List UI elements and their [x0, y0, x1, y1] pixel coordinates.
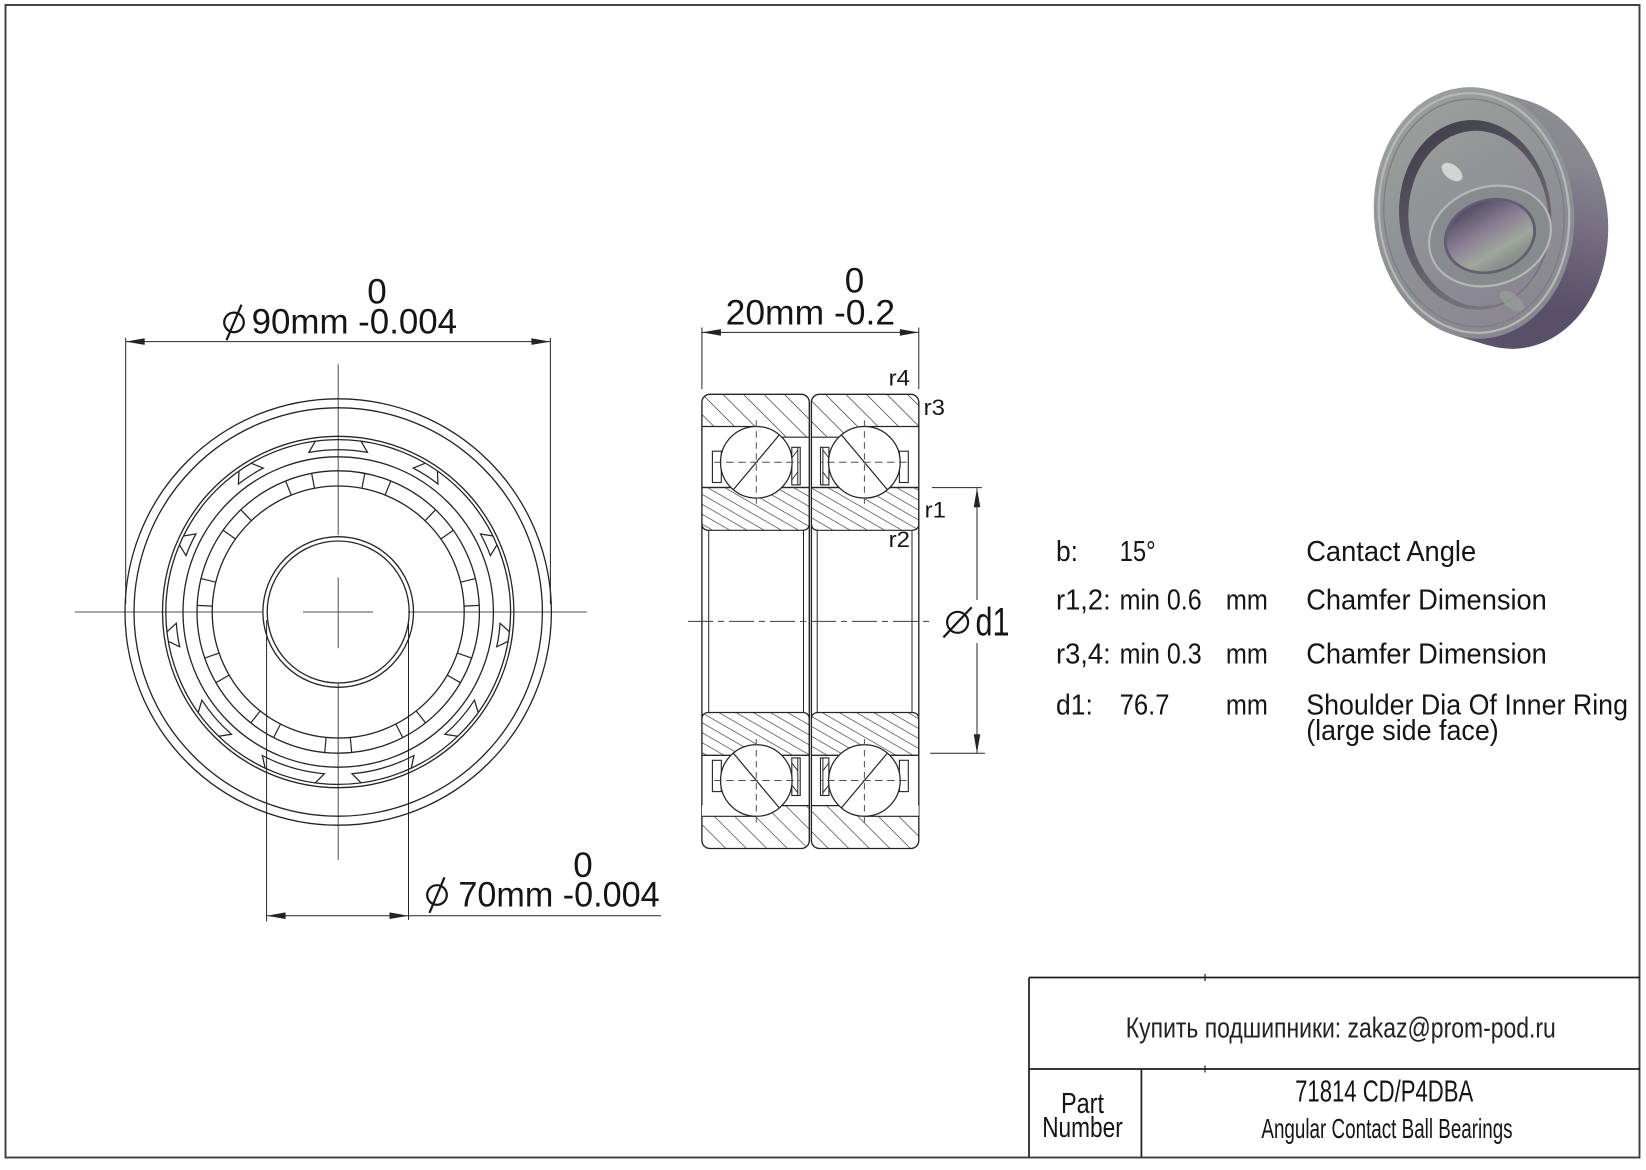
svg-text:r1: r1 [925, 498, 946, 523]
svg-text:b:: b: [1056, 536, 1078, 568]
svg-text:Number: Number [1042, 1112, 1123, 1144]
svg-text:d1: d1 [976, 601, 1010, 645]
svg-text:(large side face): (large side face) [1306, 715, 1499, 747]
svg-text:20mm -0.2: 20mm -0.2 [726, 294, 896, 333]
svg-text:mm: mm [1226, 585, 1268, 617]
svg-text:71814 CD/P4DBA: 71814 CD/P4DBA [1295, 1074, 1473, 1109]
svg-text:r3: r3 [924, 395, 945, 420]
svg-text:Купить подшипники: zakaz@prom-: Купить подшипники: zakaz@prom-pod.ru [1126, 1012, 1556, 1044]
svg-text:76.7: 76.7 [1120, 690, 1170, 722]
svg-text:Chamfer Dimension: Chamfer Dimension [1306, 639, 1547, 671]
svg-text:r1,2:: r1,2: [1056, 585, 1111, 617]
svg-text:70mm -0.004: 70mm -0.004 [458, 875, 659, 914]
svg-text:r4: r4 [889, 366, 910, 391]
svg-text:Chamfer Dimension: Chamfer Dimension [1306, 585, 1547, 617]
svg-text:r3,4:: r3,4: [1056, 639, 1111, 671]
svg-text:min 0.6: min 0.6 [1120, 585, 1202, 617]
svg-text:mm: mm [1226, 639, 1268, 671]
svg-text:90mm -0.004: 90mm -0.004 [252, 303, 458, 342]
svg-text:Cantact Angle: Cantact Angle [1306, 536, 1476, 568]
svg-text:r2: r2 [889, 527, 910, 552]
svg-text:mm: mm [1226, 690, 1268, 722]
svg-text:Angular Contact Ball Bearings: Angular Contact Ball Bearings [1261, 1113, 1512, 1144]
svg-text:min 0.3: min 0.3 [1120, 639, 1202, 671]
svg-text:15°: 15° [1120, 536, 1156, 568]
svg-text:d1:: d1: [1056, 690, 1093, 722]
